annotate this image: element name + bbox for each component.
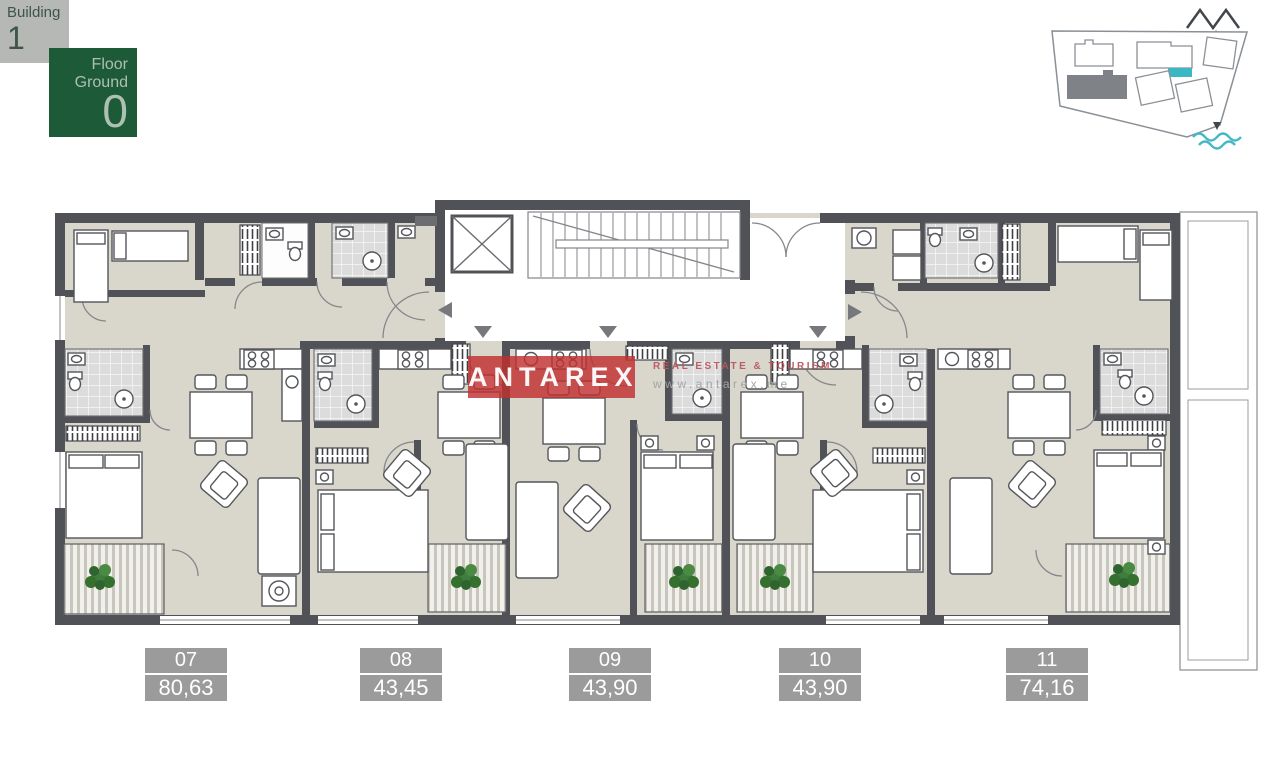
outdoor-terrace-outline: [1180, 212, 1257, 670]
sofa: [258, 478, 300, 574]
sofa: [950, 478, 992, 574]
floor-plan: [55, 200, 1257, 670]
nightstand: [907, 470, 924, 484]
unit-area: 43,45: [360, 673, 442, 701]
highlighted-unit: [1168, 68, 1192, 77]
watermark-text: REAL ESTATE & TOURISM www.antarex.me: [653, 356, 832, 391]
unit-area: 74,16: [1006, 673, 1088, 701]
unit-area: 80,63: [145, 673, 227, 701]
corridor: [445, 280, 845, 341]
mountains-icon: [1187, 10, 1239, 28]
unit-label-09: 09 43,90: [569, 648, 651, 701]
staircase: [528, 212, 740, 278]
watermark-website: www.antarex.me: [653, 377, 832, 391]
wardrobe: [1002, 224, 1020, 280]
unit-label-07: 07 80,63: [145, 648, 227, 701]
floor-badge: Floor Ground 0: [49, 48, 137, 137]
floor-badge-label: Floor: [49, 56, 128, 74]
building-outline: [1203, 37, 1237, 69]
watermark-tagline: REAL ESTATE & TOURISM: [653, 361, 832, 372]
unit-label-10: 10 43,90: [779, 648, 861, 701]
nightstand: [1148, 436, 1165, 450]
nightstand: [316, 470, 333, 484]
wardrobe: [893, 230, 921, 254]
unit-number: 11: [1006, 648, 1088, 673]
elevator: [452, 216, 512, 272]
stove: [398, 350, 428, 369]
unit-number: 07: [145, 648, 227, 673]
building-outline: [1137, 42, 1192, 68]
nightstand: [697, 436, 714, 450]
watermark-brand: ANTAREX: [468, 356, 635, 398]
unit-area: 43,90: [779, 673, 861, 701]
entrance-lobby: [750, 218, 845, 280]
nightstand: [1148, 540, 1165, 554]
site-plan: [1052, 10, 1247, 149]
floor-plan-page: Building 1 Floor Ground 0 ANTAREX REAL E…: [0, 0, 1280, 757]
sofa: [516, 482, 558, 578]
wardrobe: [893, 256, 921, 280]
wardrobe: [316, 448, 368, 463]
stove: [968, 350, 998, 369]
washing-machine: [262, 576, 296, 606]
building-outline: [1075, 40, 1113, 66]
wardrobe: [240, 225, 260, 275]
unit-label-08: 08 43,45: [360, 648, 442, 701]
building-outline: [1135, 71, 1174, 105]
unit-label-11: 11 74,16: [1006, 648, 1088, 701]
sofa: [733, 444, 775, 540]
building-outline: [1175, 78, 1212, 112]
wardrobe: [873, 448, 925, 463]
wardrobe: [1102, 420, 1166, 435]
unit-area: 43,90: [569, 673, 651, 701]
wardrobe: [66, 426, 140, 441]
sofa: [466, 444, 508, 540]
sea-waves-icon: [1193, 134, 1241, 149]
watermark: ANTAREX REAL ESTATE & TOURISM www.antare…: [468, 356, 832, 398]
unit-number: 10: [779, 648, 861, 673]
unit-number: 09: [569, 648, 651, 673]
unit-number: 08: [360, 648, 442, 673]
nightstand: [641, 436, 658, 450]
stove: [244, 350, 274, 369]
floor-badge-level-number: 0: [49, 88, 128, 134]
